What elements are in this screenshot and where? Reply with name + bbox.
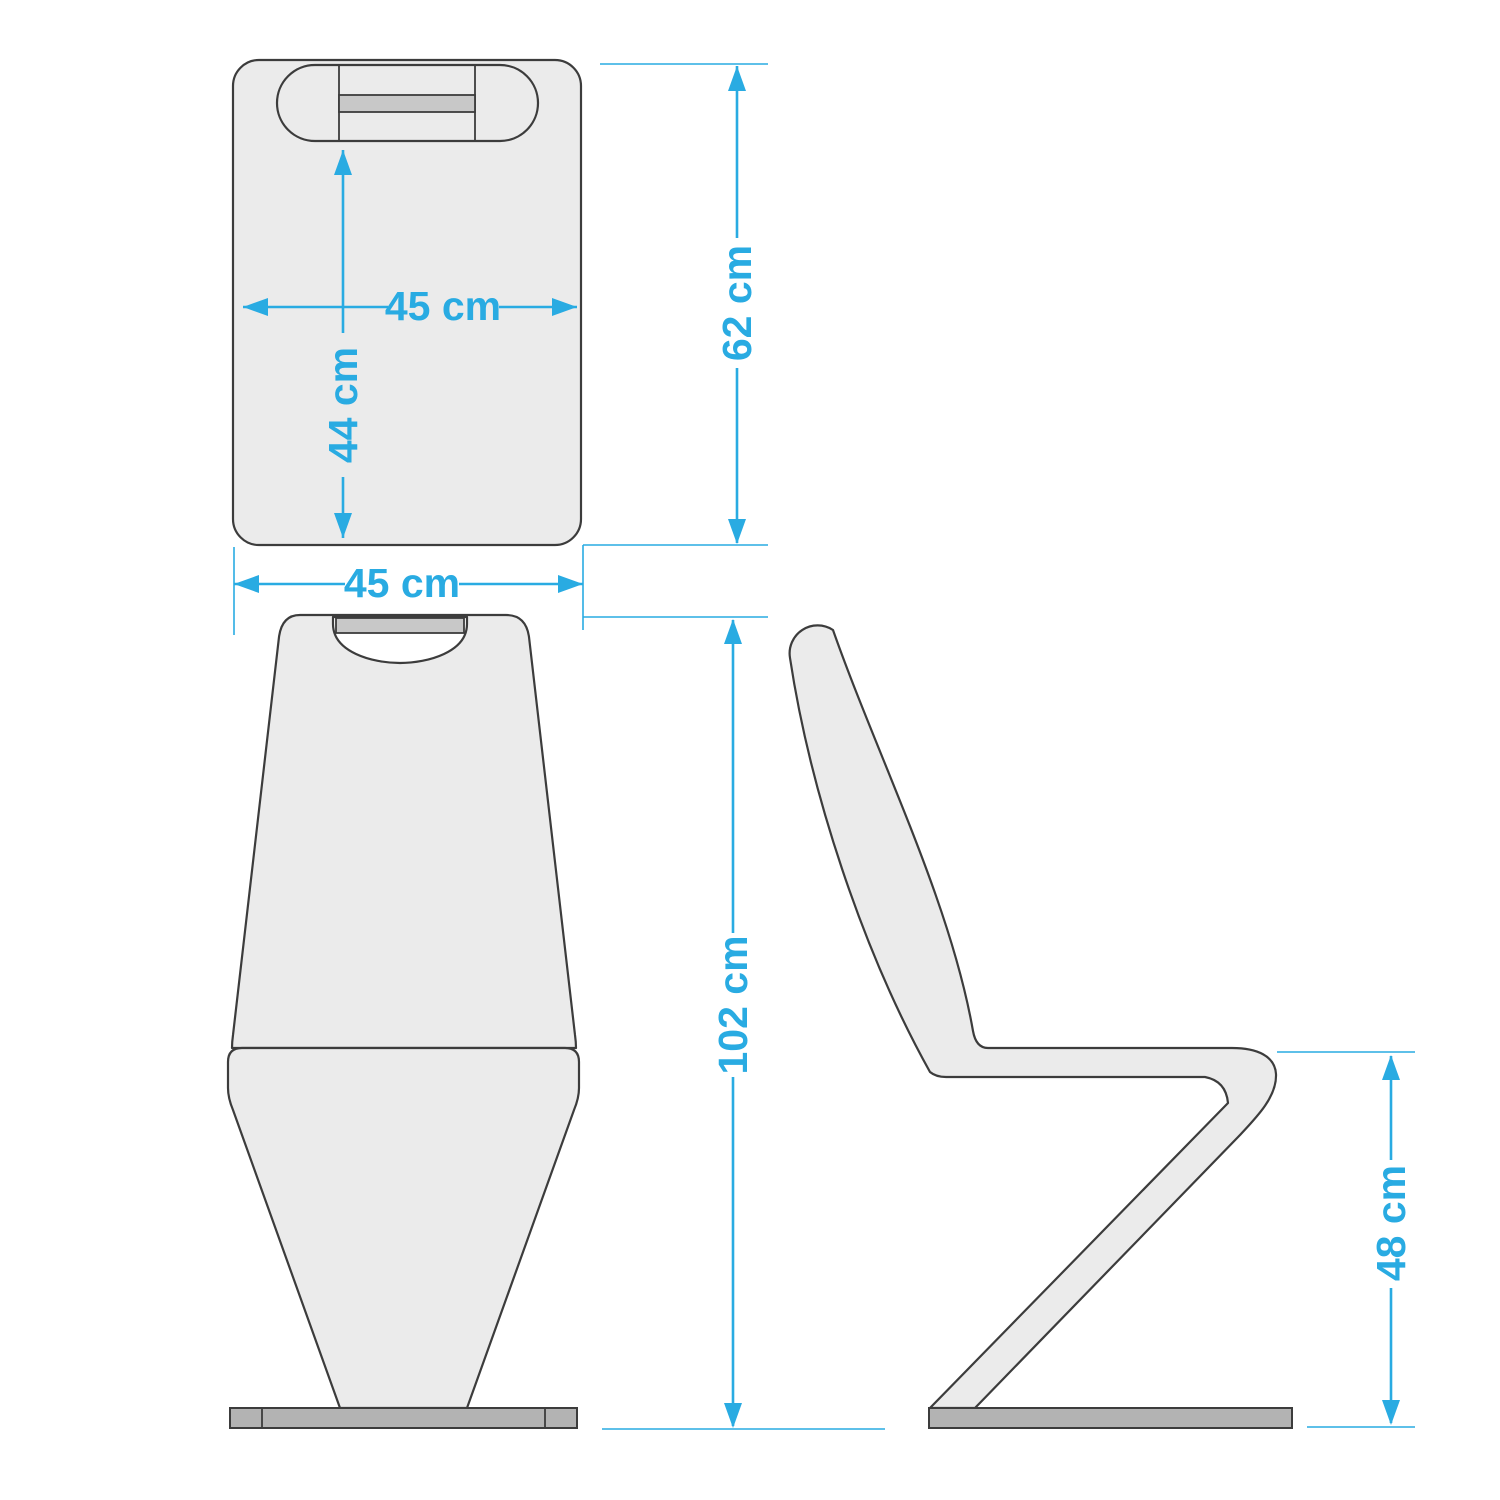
dim-seat-depth-label: 44 cm [320,347,366,463]
front-view-base-bar [230,1408,577,1428]
arrow-down-icon [728,519,746,544]
front-view-backrest [232,615,576,1048]
front-view-seat-and-pedestal [228,1048,579,1408]
dim-seat-height: 48 cm [1277,1052,1415,1427]
arrow-left-icon [234,575,259,593]
dim-backrest-height-label: 62 cm [714,245,760,361]
arrow-right-icon [558,575,583,593]
top-view-handle-bar [339,95,475,112]
front-view-handle-bar [336,618,464,633]
arrow-down-icon [1382,1400,1400,1425]
diagram-canvas: 45 cm 44 cm 62 cm 45 cm 102 cm [0,0,1500,1500]
side-view-base-bar [929,1408,1292,1428]
arrow-up-icon [1382,1055,1400,1080]
dim-seat-width-label: 45 cm [385,283,501,329]
dim-overall-width-label: 45 cm [344,560,460,606]
side-view-z-profile [790,625,1276,1408]
side-view [790,625,1292,1428]
arrow-up-icon [728,66,746,91]
front-view [228,615,579,1428]
dim-overall-height-label: 102 cm [710,935,756,1074]
dim-backrest-height: 62 cm [583,64,768,545]
dim-seat-height-label: 48 cm [1368,1165,1414,1281]
arrow-down-icon [724,1403,742,1428]
chair-dimension-diagram: 45 cm 44 cm 62 cm 45 cm 102 cm [0,0,1500,1500]
arrow-up-icon [724,619,742,644]
